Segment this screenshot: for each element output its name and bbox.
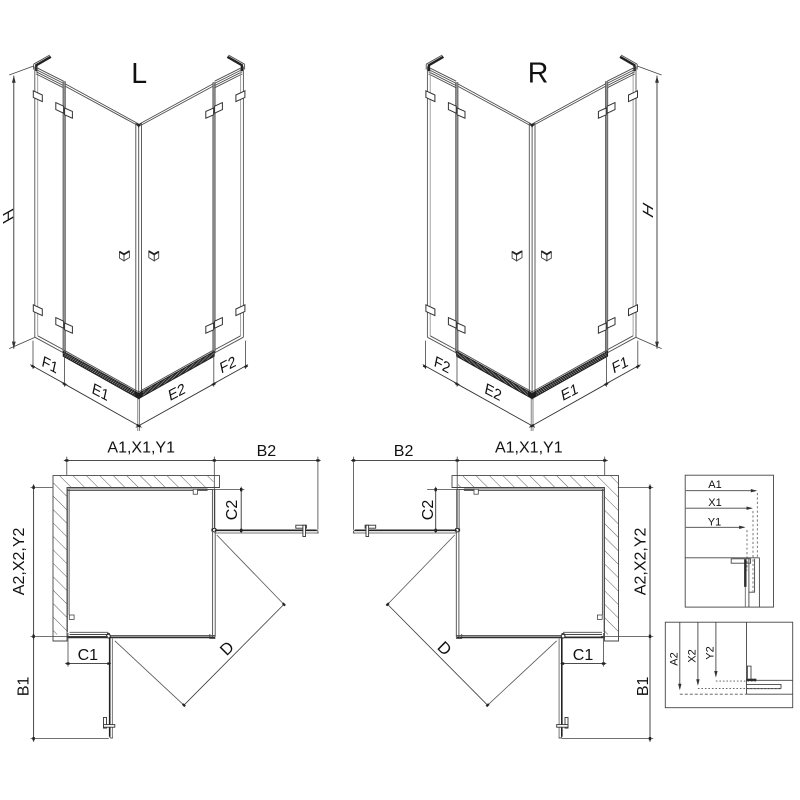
svg-text:C1: C1 [573,647,594,664]
svg-text:B1: B1 [635,677,652,697]
svg-text:A1: A1 [708,479,721,491]
svg-text:L: L [131,58,147,90]
svg-text:X1: X1 [708,497,721,509]
svg-text:C2: C2 [420,500,437,521]
svg-text:X2: X2 [687,649,699,662]
svg-text:R: R [528,58,549,90]
svg-text:Y2: Y2 [705,646,717,659]
svg-text:B1: B1 [16,677,33,697]
svg-text:Y1: Y1 [708,516,721,528]
svg-text:B2: B2 [257,443,277,460]
svg-text:C2: C2 [224,500,241,521]
svg-text:A2,X2,Y2: A2,X2,Y2 [633,528,650,596]
svg-text:C1: C1 [78,647,99,664]
svg-text:A1,X1,Y1: A1,X1,Y1 [107,439,175,456]
svg-text:A1,X1,Y1: A1,X1,Y1 [495,439,563,456]
svg-text:B2: B2 [394,443,414,460]
svg-text:A2: A2 [668,652,680,665]
svg-text:A2,X2,Y2: A2,X2,Y2 [11,528,28,596]
